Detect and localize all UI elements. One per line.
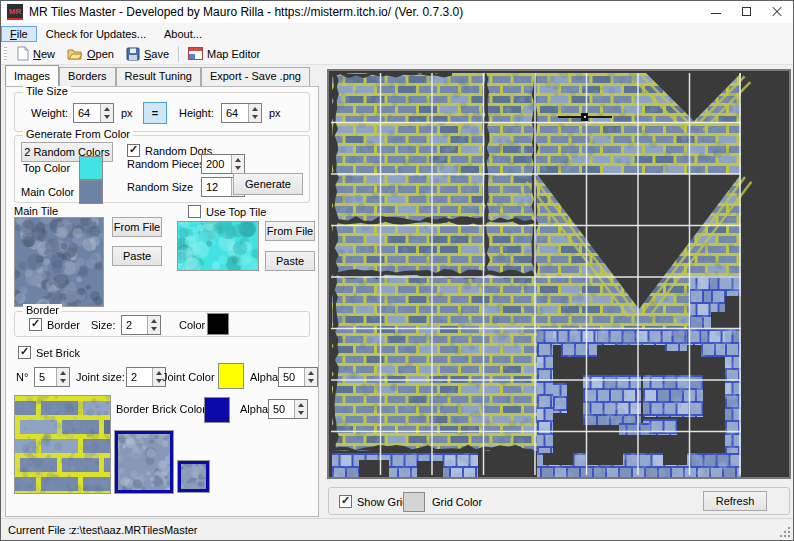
small-tile-preview xyxy=(177,460,210,493)
random-pieces-spinner[interactable]: 200 xyxy=(201,154,245,174)
main-color-swatch[interactable] xyxy=(79,180,103,204)
current-file-path: z:\test\aaz.MRTilesMaster xyxy=(71,524,198,536)
toolbar-grip[interactable] xyxy=(4,47,7,61)
toolbar-separator xyxy=(178,46,179,62)
border-color-label: Color xyxy=(179,319,205,331)
maximize-icon xyxy=(742,7,751,16)
main-tile-label: Main Tile xyxy=(14,205,58,217)
generate-group-label: Generate From Color xyxy=(23,128,133,140)
weight-spinner[interactable]: 64 xyxy=(73,103,114,123)
open-button[interactable]: Open xyxy=(61,44,120,64)
border-brick-color-swatch[interactable] xyxy=(204,397,230,423)
alpha2-spinner[interactable]: 50 xyxy=(268,399,308,419)
joint-color-swatch[interactable] xyxy=(218,363,244,389)
map-editor-button[interactable]: Map Editor xyxy=(182,44,266,64)
new-file-icon xyxy=(17,46,29,61)
minimize-button[interactable] xyxy=(701,1,731,23)
border-brick-color-label: Border Brick Color xyxy=(116,403,206,415)
border-brick-tile-preview xyxy=(114,430,174,494)
tab-page-images: Tile Size Weight: 64 px = Height: 64 px … xyxy=(5,86,319,517)
border-size-spinner[interactable]: 2 xyxy=(121,315,161,335)
resize-grip-icon[interactable] xyxy=(779,526,791,538)
spinner-arrows-icon[interactable] xyxy=(304,368,317,386)
grid-color-label: Grid Color xyxy=(432,496,482,508)
spinner-arrows-icon[interactable] xyxy=(294,400,307,418)
alpha2-label: Alpha xyxy=(240,403,268,415)
random-size-label: Random Size xyxy=(127,181,193,193)
border-checkbox[interactable] xyxy=(29,318,42,331)
grid-color-swatch[interactable] xyxy=(403,492,425,512)
brick-n-spinner[interactable]: 5 xyxy=(34,367,70,387)
main-tile-from-file-button[interactable]: From File xyxy=(112,217,162,237)
generate-button[interactable]: Generate xyxy=(233,173,303,195)
joint-size-label: Joint size: xyxy=(76,371,125,383)
generate-from-color-group: Generate From Color 2 Random Colors Rand… xyxy=(14,135,310,203)
tab-borders[interactable]: Borders xyxy=(59,67,116,86)
joint-size-spinner[interactable]: 2 xyxy=(126,367,166,387)
tab-strip: Images Borders Result Tuning Export - Sa… xyxy=(5,65,310,86)
tab-control: Images Borders Result Tuning Export - Sa… xyxy=(5,65,319,517)
top-tile-paste-button[interactable]: Paste xyxy=(265,251,315,271)
open-folder-icon xyxy=(67,47,83,61)
new-label: New xyxy=(33,48,55,60)
top-color-swatch[interactable] xyxy=(79,156,103,180)
border-size-label: Size: xyxy=(91,319,115,331)
current-file-label: Current File : xyxy=(8,524,72,536)
spinner-arrows-icon[interactable] xyxy=(56,368,69,386)
spinner-arrows-icon[interactable] xyxy=(231,155,244,173)
main-tile-preview xyxy=(14,217,104,307)
tab-result-tuning[interactable]: Result Tuning xyxy=(116,67,201,86)
open-label: Open xyxy=(87,48,114,60)
tileset-preview-canvas[interactable] xyxy=(329,71,789,477)
tileset-preview-panel xyxy=(327,69,791,479)
menu-file[interactable]: File xyxy=(1,26,37,42)
refresh-button[interactable]: Refresh xyxy=(703,491,767,511)
main-tile-paste-button[interactable]: Paste xyxy=(112,246,162,266)
use-top-tile-checkbox[interactable] xyxy=(188,205,201,218)
spinner-arrows-icon[interactable] xyxy=(100,104,113,122)
joint-color-label: Joint Color xyxy=(162,371,215,383)
brick-tile-preview xyxy=(14,395,111,494)
set-brick-checkbox[interactable] xyxy=(18,346,31,359)
brick-n-label: N° xyxy=(16,371,28,383)
alpha-label: Alpha xyxy=(250,371,278,383)
toolbar: New Open Save Map Editor xyxy=(1,43,793,65)
app-window: MR MR Tiles Master - Developed by Mauro … xyxy=(0,0,794,541)
border-group: Border Border Size: 2 Color xyxy=(14,311,310,337)
tile-size-group-label: Tile Size xyxy=(23,85,71,97)
menu-check-for-updates[interactable]: Check for Updates... xyxy=(37,26,155,42)
status-bar: Current File : z:\test\aaz.MRTilesMaster xyxy=(1,518,793,540)
tab-export-save-png[interactable]: Export - Save .png xyxy=(201,67,310,86)
title-bar: MR MR Tiles Master - Developed by Mauro … xyxy=(1,1,793,23)
top-color-label: Top Color xyxy=(23,162,70,174)
weight-px-label: px xyxy=(121,107,133,119)
equal-size-button[interactable]: = xyxy=(143,102,167,124)
top-tile-preview xyxy=(177,221,259,271)
save-button[interactable]: Save xyxy=(120,44,175,64)
random-pieces-label: Random Pieces xyxy=(127,158,205,170)
save-disk-icon xyxy=(126,47,140,61)
maximize-button[interactable] xyxy=(732,1,762,23)
main-content: Images Borders Result Tuning Export - Sa… xyxy=(1,65,793,518)
tile-size-group: Tile Size Weight: 64 px = Height: 64 px xyxy=(14,92,310,132)
height-spinner[interactable]: 64 xyxy=(221,103,262,123)
weight-label: Weight: xyxy=(31,107,68,119)
alpha-spinner[interactable]: 50 xyxy=(278,367,318,387)
grid-options-group: Show Grid Grid Color Refresh xyxy=(328,487,790,515)
app-icon: MR xyxy=(7,4,23,20)
main-color-label: Main Color xyxy=(21,186,74,198)
border-group-label: Border xyxy=(23,304,62,316)
height-px-label: px xyxy=(269,107,281,119)
show-grid-checkbox[interactable] xyxy=(339,495,352,508)
set-brick-label: Set Brick xyxy=(36,347,80,359)
border-checkbox-label: Border xyxy=(47,319,80,331)
menu-about[interactable]: About... xyxy=(155,26,211,42)
spinner-arrows-icon[interactable] xyxy=(147,316,160,334)
border-color-swatch[interactable] xyxy=(207,313,229,335)
height-label: Height: xyxy=(179,107,214,119)
map-editor-label: Map Editor xyxy=(207,48,260,60)
menu-bar: File Check for Updates... About... xyxy=(1,23,793,43)
map-editor-icon xyxy=(188,47,203,60)
spinner-arrows-icon[interactable] xyxy=(248,104,261,122)
use-top-tile-label: Use Top Tile xyxy=(206,206,266,218)
random-dots-checkbox[interactable] xyxy=(127,144,140,157)
window-title: MR Tiles Master - Developed by Mauro Ril… xyxy=(29,5,463,19)
show-grid-label: Show Grid xyxy=(357,496,408,508)
close-button[interactable] xyxy=(762,1,792,23)
new-button[interactable]: New xyxy=(11,44,61,64)
save-label: Save xyxy=(144,48,169,60)
top-tile-from-file-button[interactable]: From File xyxy=(265,221,315,241)
minimize-icon xyxy=(711,13,721,14)
tab-images[interactable]: Images xyxy=(5,65,59,86)
